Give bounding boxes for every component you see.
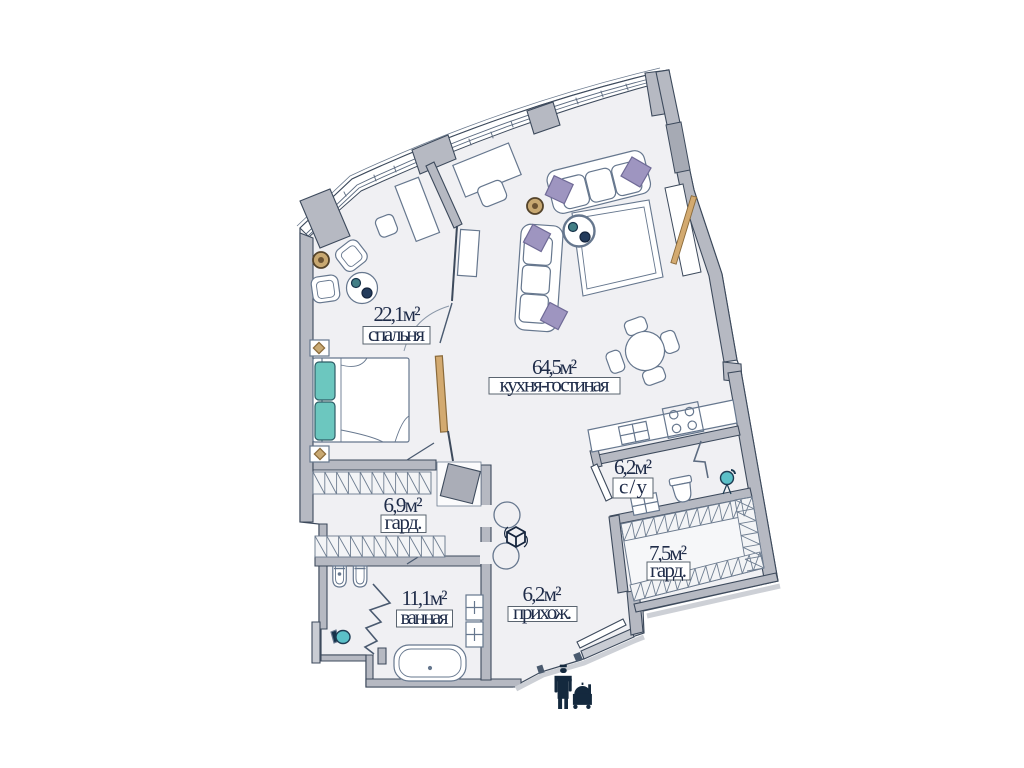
- svg-text:с/у: с/у: [619, 475, 648, 499]
- svg-text:ванная: ванная: [401, 605, 449, 629]
- svg-text:гард.: гард.: [650, 558, 687, 582]
- svg-text:прихож.: прихож.: [513, 600, 572, 624]
- svg-text:гард.: гард.: [385, 510, 423, 534]
- svg-text:спальня: спальня: [368, 322, 425, 346]
- svg-text:кухня-гостиная: кухня-гостиная: [500, 373, 610, 397]
